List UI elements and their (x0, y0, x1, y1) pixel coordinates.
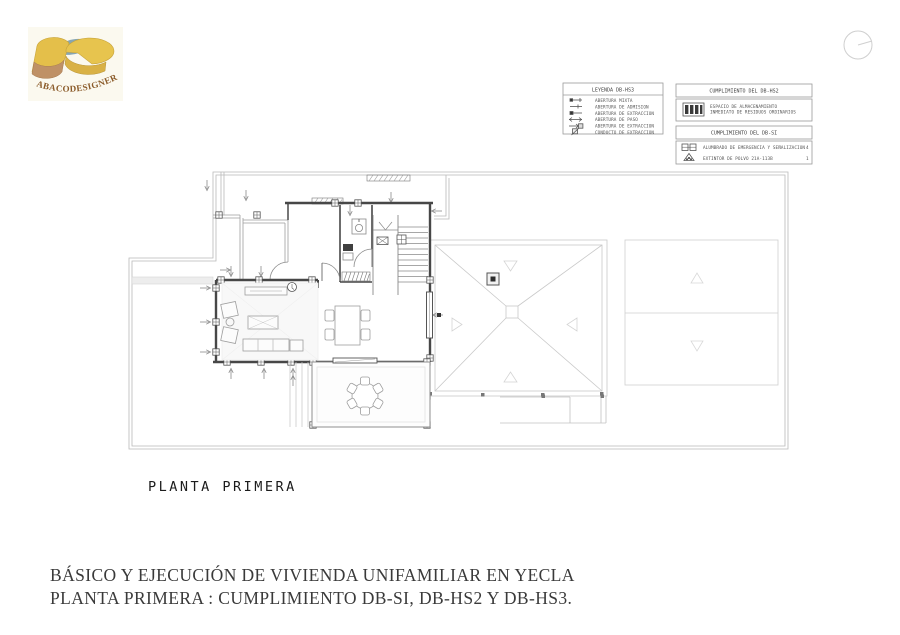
sheet-title: BÁSICO Y EJECUCIÓN DE VIVIENDA UNIFAMILI… (50, 565, 575, 608)
abaco-logo: ABACODESIGNER (28, 27, 123, 101)
conducto-extraccion-roof-icon (487, 273, 499, 285)
legend-hs2-title: CUMPLIMIENTO DEL DB-HS2 (709, 89, 778, 95)
legend-hs2-item-line2: INMEDIATO DE RESIDUOS ORDINARIOS (710, 110, 796, 116)
extraction-grille (342, 272, 370, 281)
dining-table (325, 306, 370, 345)
plan-label: PLANTA PRIMERA (148, 479, 297, 495)
terrace-steps-right (500, 395, 606, 424)
gable-roof (625, 240, 778, 385)
legend-hs3-item-label: ABERTURA DE PASO (595, 117, 638, 123)
glazed-door (333, 358, 377, 363)
legend-hs3-item-label: ABERTURA DE EXTRACCION (595, 111, 654, 117)
alumbrado-emergencia-plan-icon (377, 237, 388, 245)
north-indicator-icon (844, 31, 872, 59)
legend-si-item-count: 1 (806, 156, 809, 162)
plan-canvas: ABACODESIGNER LEYENDA DB-HS3 ABERTURA MI… (0, 0, 900, 635)
legend-si-item-label: EXTINTOR DE POLVO 21A-113B (703, 156, 773, 162)
legend-si-item-label: ALUMBRADO DE EMERGENCIA Y SEÑALIZACION (703, 144, 805, 151)
legend-hs3-item-label: ABERTURA DE EXTRACCION (595, 124, 654, 130)
legend-hs3: LEYENDA DB-HS3 ABERTURA MIXTA ABERTURA D… (563, 83, 663, 136)
legend-si-item-count: 4 (806, 145, 809, 151)
legend-si-title: CUMPLIMIENTO DEL DB-SI (711, 131, 777, 137)
appliance-dark (343, 244, 353, 251)
legend-si: CUMPLIMIENTO DEL DB-SI ALUMBRADO DE EMER… (676, 126, 812, 164)
almacen-residuos-icon (683, 103, 704, 116)
title-line-2: PLANTA PRIMERA : CUMPLIMIENTO DB-SI, DB-… (50, 588, 572, 608)
porch (290, 358, 430, 427)
legend-hs3-item-label: CONDUCTO DE EXTRACCION (595, 130, 654, 136)
living-room-furniture (221, 283, 318, 361)
hip-roof (429, 240, 608, 397)
legend-hs3-title: LEYENDA DB-HS3 (592, 88, 634, 94)
registro-icon (397, 235, 406, 244)
abertura-extraccion-marker (437, 313, 441, 317)
staircase (373, 222, 428, 282)
pergola-band (132, 277, 213, 284)
legend-hs3-item-label: ABERTURA DE ADMISION (595, 104, 649, 110)
stair-direction-mark (379, 222, 392, 230)
floor-plan (129, 172, 788, 449)
legend-hs2-item-line1: ESPACIO DE ALMACENAMIENTO (710, 104, 777, 110)
legend-hs2: CUMPLIMIENTO DEL DB-HS2 ESPACIO DE ALMAC… (676, 84, 812, 121)
drawing-sheet: ABACODESIGNER LEYENDA DB-HS3 ABERTURA MI… (0, 0, 900, 635)
legend-hs3-item-label: ABERTURA MIXTA (595, 98, 633, 104)
conducto-extraccion-icon (572, 128, 580, 135)
title-line-1: BÁSICO Y EJECUCIÓN DE VIVIENDA UNIFAMILI… (50, 565, 575, 585)
